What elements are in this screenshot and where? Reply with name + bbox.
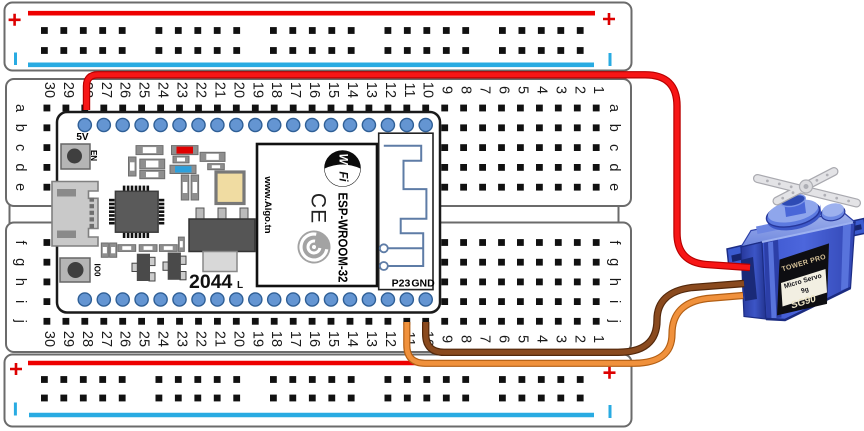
svg-text:15: 15: [325, 331, 341, 347]
svg-text:P23: P23: [392, 278, 411, 290]
svg-text:8: 8: [458, 86, 474, 94]
svg-text:9: 9: [439, 86, 455, 94]
svg-text:d: d: [12, 163, 28, 171]
svg-text:g: g: [12, 258, 28, 266]
svg-text:29: 29: [60, 331, 76, 347]
svg-text:16: 16: [306, 82, 322, 98]
svg-text:24: 24: [155, 82, 171, 98]
svg-text:17: 17: [287, 331, 303, 347]
svg-text:2: 2: [571, 86, 587, 94]
svg-text:12: 12: [382, 82, 398, 98]
svg-text:Wi: Wi: [337, 154, 349, 169]
svg-text:9: 9: [439, 335, 455, 343]
svg-text:h: h: [12, 278, 28, 286]
svg-text:21: 21: [211, 331, 227, 347]
svg-text:17: 17: [287, 82, 303, 98]
svg-text:www.Algo.tn: www.Algo.tn: [262, 175, 273, 233]
svg-text:25: 25: [136, 331, 152, 347]
svg-text:30: 30: [41, 82, 57, 98]
svg-text:j: j: [12, 319, 28, 323]
svg-text:5V: 5V: [76, 132, 89, 143]
svg-text:18: 18: [268, 82, 284, 98]
svg-text:EN: EN: [89, 150, 98, 161]
svg-text:10: 10: [420, 82, 436, 98]
svg-text:30: 30: [41, 331, 57, 347]
svg-text:22: 22: [193, 82, 209, 98]
svg-text:16: 16: [306, 331, 322, 347]
svg-text:28: 28: [79, 331, 95, 347]
svg-text:25: 25: [136, 82, 152, 98]
svg-text:12: 12: [382, 331, 398, 347]
svg-text:6: 6: [496, 86, 512, 94]
svg-text:15: 15: [325, 82, 341, 98]
svg-text:14: 14: [344, 331, 360, 347]
svg-text:b: b: [606, 124, 622, 132]
svg-text:26: 26: [117, 82, 133, 98]
svg-text:19: 19: [249, 331, 265, 347]
svg-text:23: 23: [174, 331, 190, 347]
svg-text:4: 4: [533, 335, 549, 343]
svg-text:4: 4: [533, 86, 549, 94]
svg-text:7: 7: [477, 86, 493, 94]
svg-text:d: d: [606, 163, 622, 171]
svg-text:IO0: IO0: [93, 264, 102, 277]
svg-text:8: 8: [458, 335, 474, 343]
svg-text:5: 5: [514, 335, 530, 343]
svg-text:21: 21: [211, 82, 227, 98]
svg-text:18: 18: [268, 331, 284, 347]
svg-text:c: c: [606, 144, 622, 151]
svg-text:3: 3: [552, 335, 568, 343]
svg-text:22: 22: [193, 331, 209, 347]
svg-text:CE: CE: [307, 193, 330, 224]
svg-text:13: 13: [363, 331, 379, 347]
svg-text:i: i: [12, 300, 28, 303]
svg-text:e: e: [606, 183, 622, 191]
svg-text:5: 5: [514, 86, 530, 94]
svg-text:i: i: [606, 300, 622, 303]
svg-text:26: 26: [117, 331, 133, 347]
svg-text:a: a: [12, 104, 28, 113]
svg-text:29: 29: [60, 82, 76, 98]
svg-text:7: 7: [477, 335, 493, 343]
svg-text:24: 24: [155, 331, 171, 347]
svg-text:Fi: Fi: [337, 171, 349, 182]
svg-text:27: 27: [98, 331, 114, 347]
svg-text:h: h: [606, 278, 622, 286]
svg-text:23: 23: [174, 82, 190, 98]
svg-text:g: g: [606, 258, 622, 266]
svg-text:1: 1: [590, 335, 606, 343]
svg-text:L: L: [237, 280, 243, 291]
svg-text:e: e: [12, 183, 28, 191]
svg-text:19: 19: [249, 82, 265, 98]
svg-text:2044: 2044: [189, 271, 233, 293]
svg-text:a: a: [606, 104, 622, 113]
svg-text:c: c: [12, 144, 28, 151]
svg-text:1: 1: [590, 86, 606, 94]
svg-text:GND: GND: [411, 278, 435, 290]
svg-text:20: 20: [230, 331, 246, 347]
svg-text:2: 2: [571, 335, 587, 343]
svg-text:27: 27: [98, 82, 114, 98]
svg-text:20: 20: [230, 82, 246, 98]
svg-text:11: 11: [401, 82, 417, 97]
svg-text:14: 14: [344, 82, 360, 98]
svg-text:13: 13: [363, 82, 379, 98]
svg-text:3: 3: [552, 86, 568, 94]
svg-text:b: b: [12, 124, 28, 132]
svg-text:j: j: [606, 319, 622, 323]
svg-text:ESP-WROOM-32: ESP-WROOM-32: [336, 193, 351, 283]
svg-text:6: 6: [496, 335, 512, 343]
